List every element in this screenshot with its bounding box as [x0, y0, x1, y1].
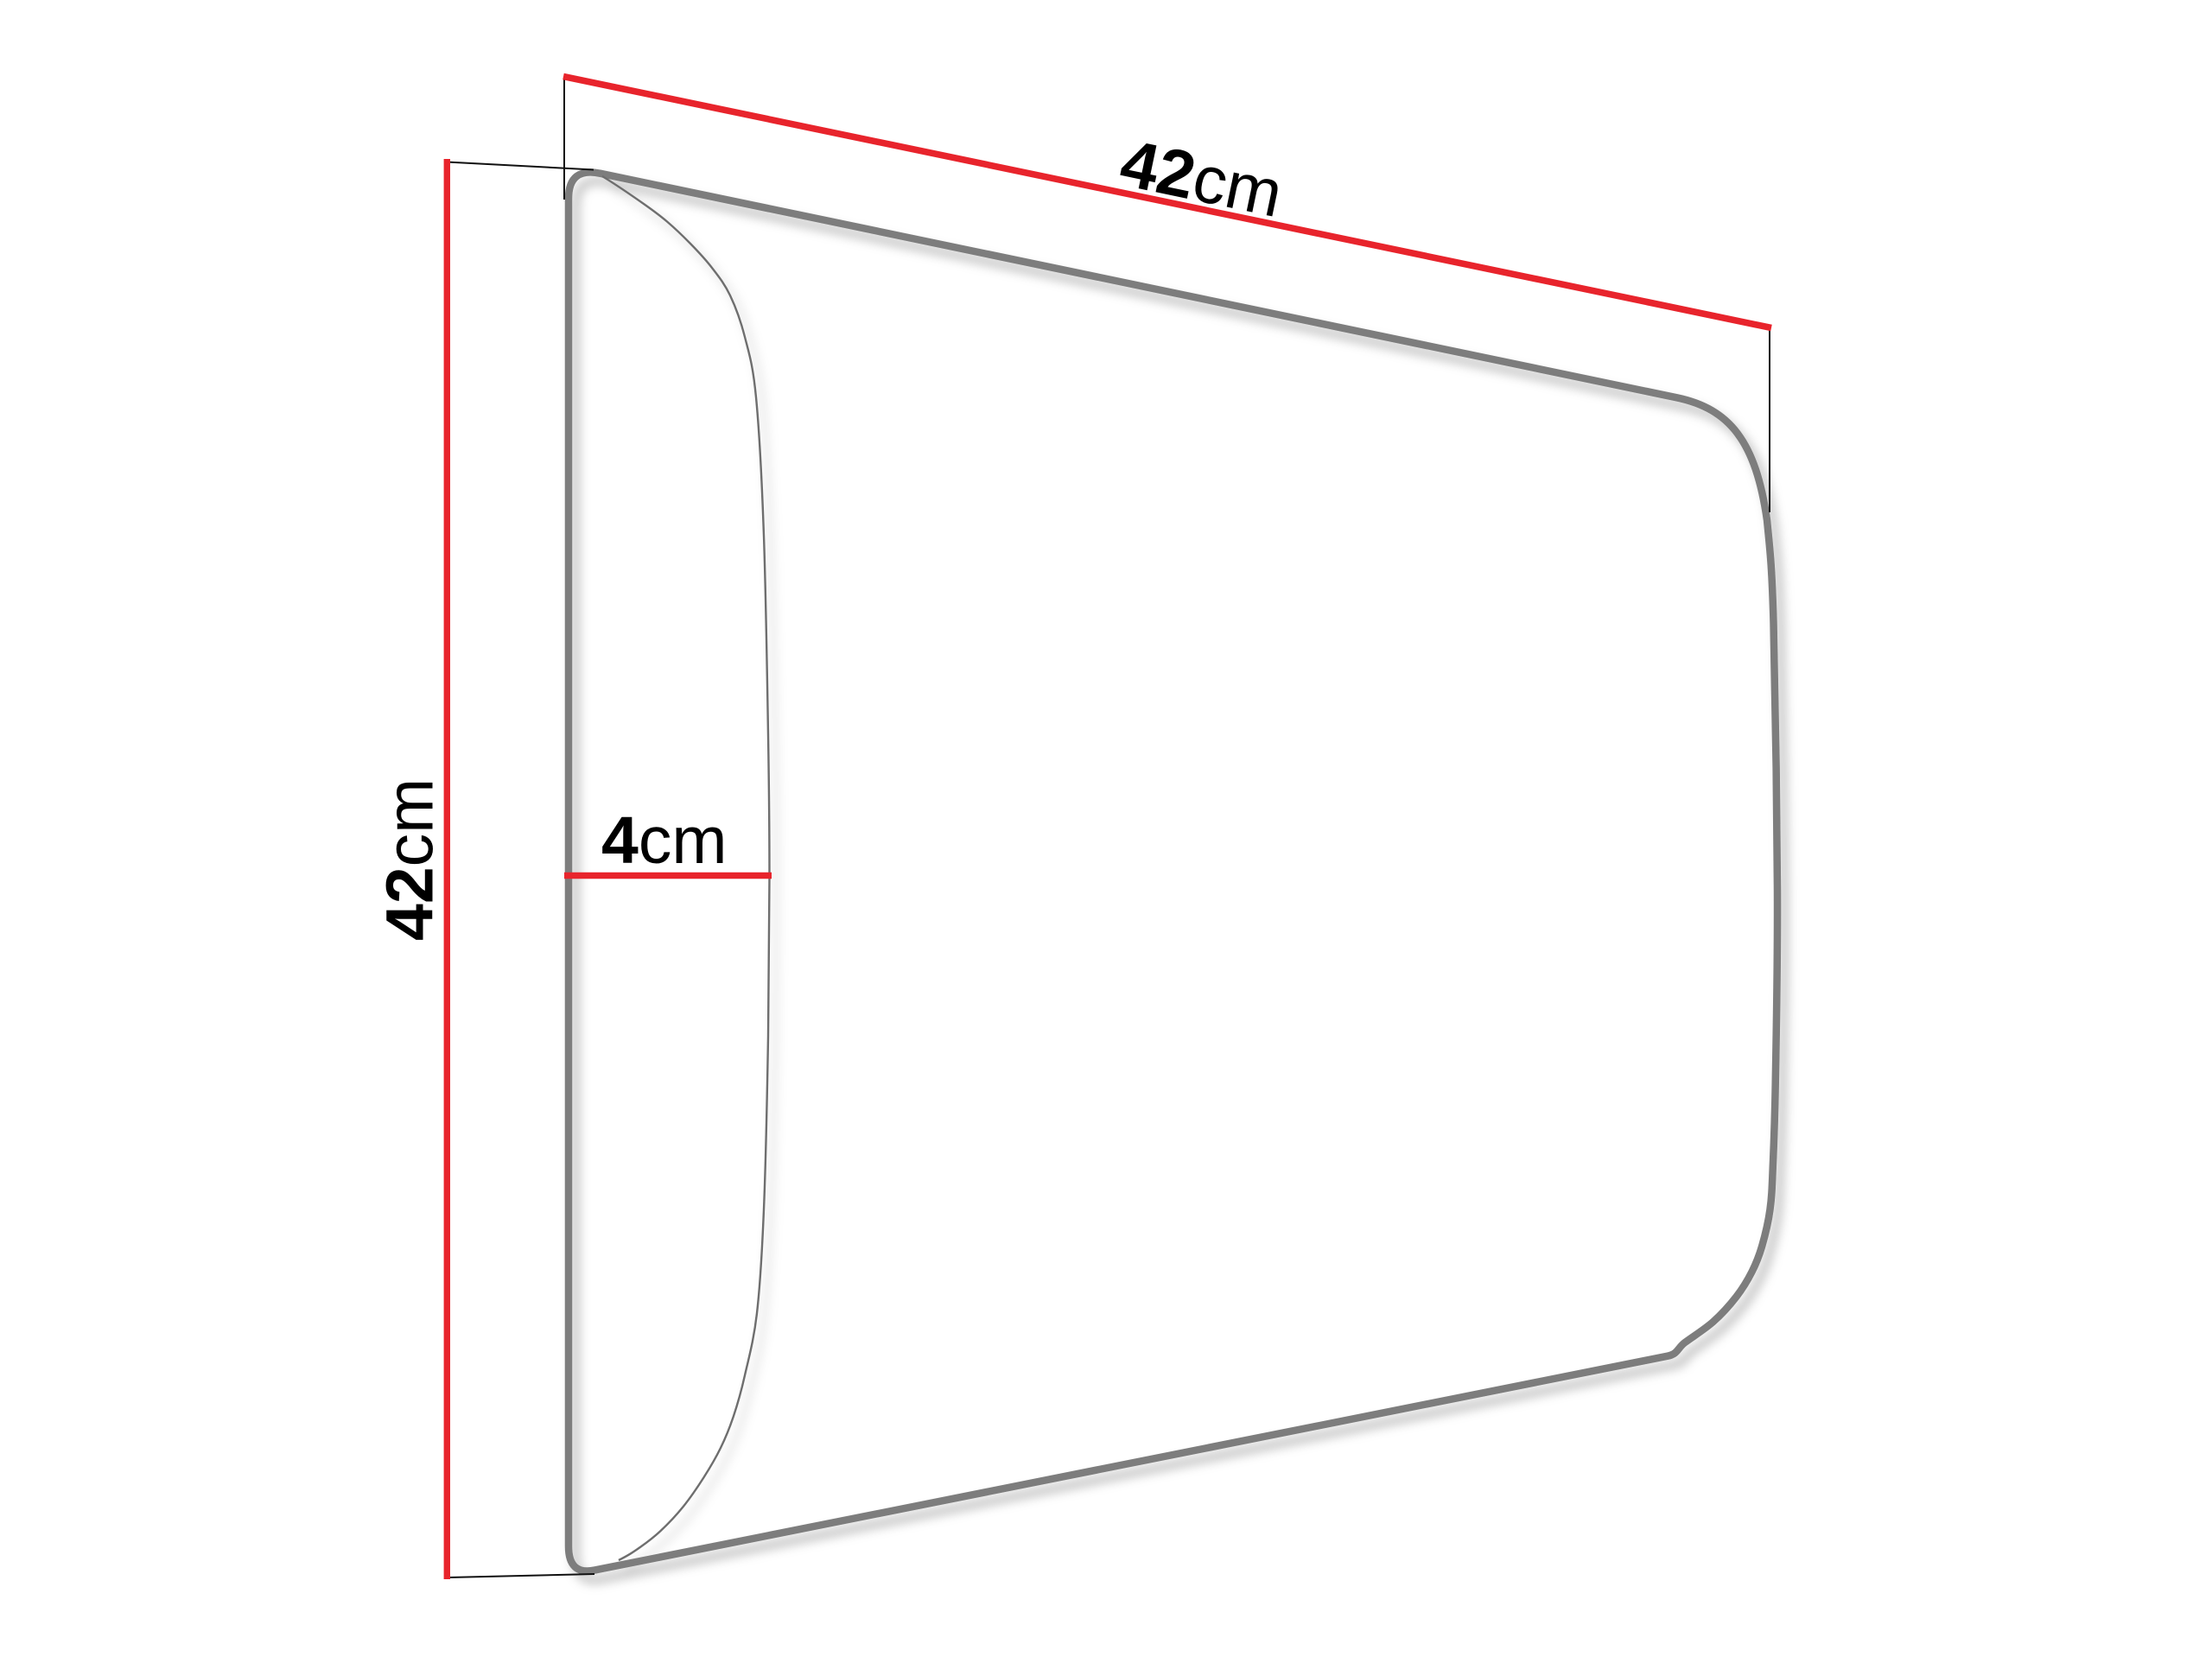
- svg-text:4cm: 4cm: [601, 803, 727, 878]
- svg-text:42cm: 42cm: [373, 778, 448, 941]
- svg-text:42cm: 42cm: [1115, 125, 1289, 232]
